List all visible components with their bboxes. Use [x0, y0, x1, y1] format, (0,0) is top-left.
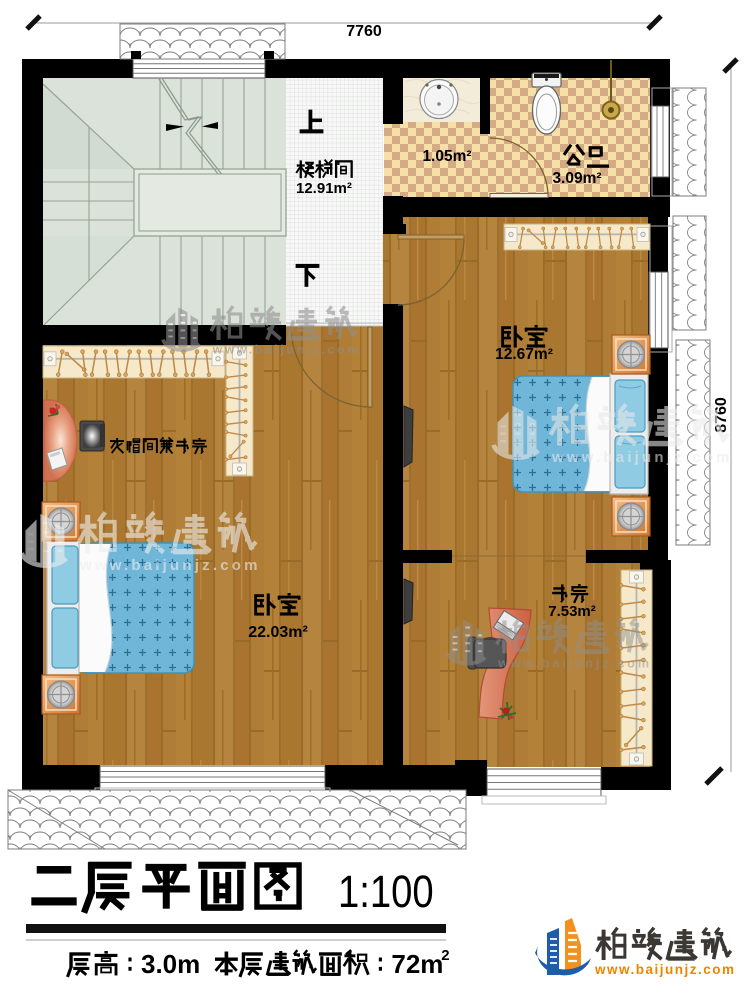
svg-text:3.0m: 3.0m [141, 949, 200, 979]
svg-text:www.baijunjz.com: www.baijunjz.com [551, 449, 733, 466]
svg-text:1.05m²: 1.05m² [422, 148, 471, 165]
svg-text:www.baijunjz.com: www.baijunjz.com [497, 655, 652, 670]
svg-text:7760: 7760 [346, 23, 382, 40]
svg-text:3.09m²: 3.09m² [552, 170, 601, 187]
svg-text:72m: 72m [391, 949, 443, 979]
svg-text:7.53m²: 7.53m² [548, 603, 596, 620]
svg-text:12.91m²: 12.91m² [296, 180, 352, 197]
svg-text:12.67m²: 12.67m² [495, 346, 553, 363]
svg-text:2: 2 [441, 947, 449, 964]
svg-text:22.03m²: 22.03m² [248, 624, 308, 641]
svg-text:1:100: 1:100 [338, 866, 434, 917]
svg-text:www.baijunjz.com: www.baijunjz.com [212, 343, 361, 357]
svg-text:www.baijunjz.com: www.baijunjz.com [79, 557, 261, 574]
svg-text:www.baijunjz.com: www.baijunjz.com [594, 962, 736, 977]
